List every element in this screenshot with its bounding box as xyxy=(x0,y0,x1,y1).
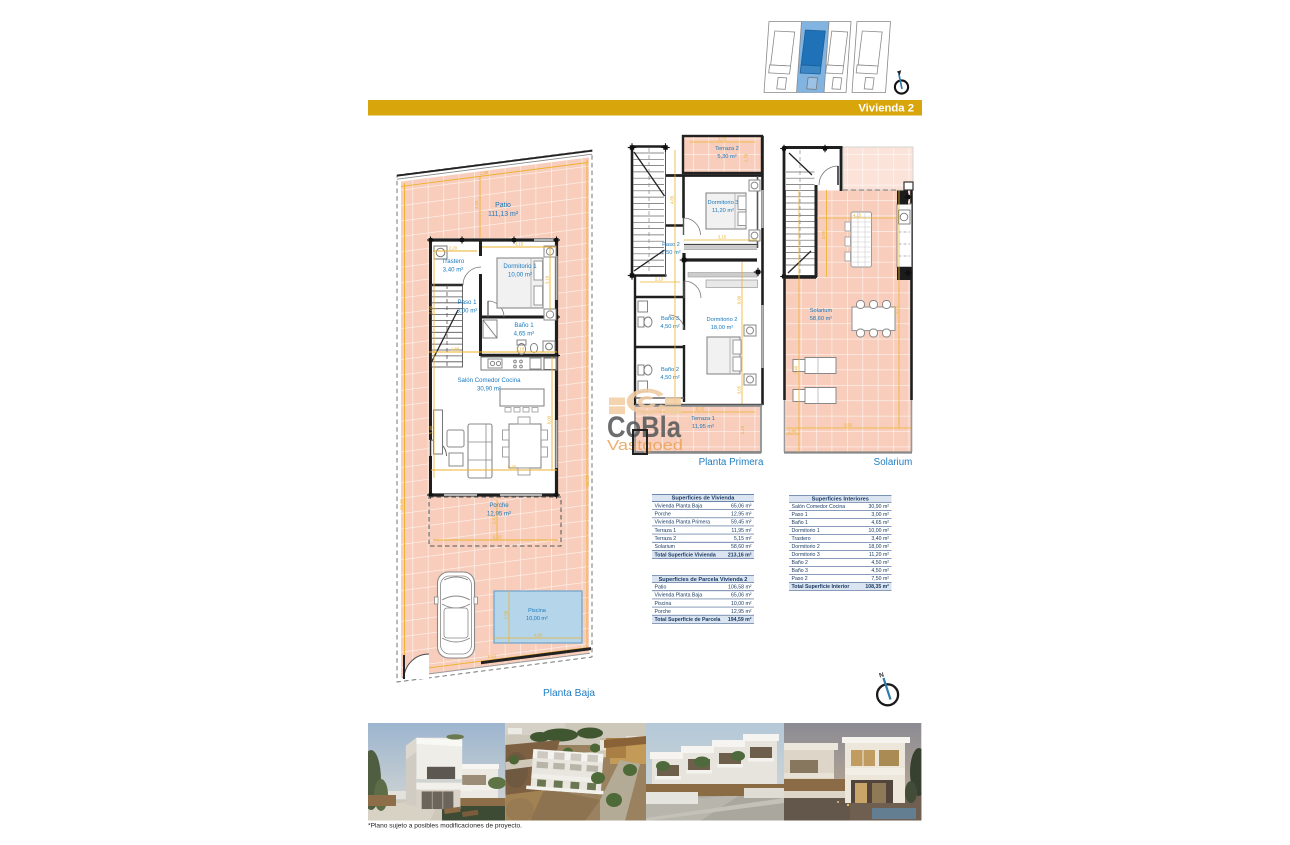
svg-text:Solarium: Solarium xyxy=(874,457,913,468)
svg-text:59,45 m²: 59,45 m² xyxy=(731,520,752,526)
svg-text:Total Superficie de Parcela: Total Superficie de Parcela xyxy=(655,617,721,623)
svg-text:3,18: 3,18 xyxy=(545,275,550,284)
svg-text:Vivienda 2: Vivienda 2 xyxy=(858,103,914,115)
svg-text:Superficies Interiores: Superficies Interiores xyxy=(812,497,869,503)
svg-text:1,15: 1,15 xyxy=(894,305,899,314)
svg-text:4,65 m²: 4,65 m² xyxy=(514,331,535,338)
svg-text:5,05: 5,05 xyxy=(696,407,705,412)
svg-text:5,55: 5,55 xyxy=(844,423,853,428)
svg-text:58,60 m²: 58,60 m² xyxy=(731,544,752,550)
svg-text:Solarium: Solarium xyxy=(655,544,675,550)
svg-text:3,05: 3,05 xyxy=(737,385,742,394)
svg-text:30,90 m²: 30,90 m² xyxy=(477,386,501,393)
svg-text:10,00 m²: 10,00 m² xyxy=(869,528,890,534)
svg-text:4,85: 4,85 xyxy=(670,195,675,204)
svg-text:Piscina: Piscina xyxy=(655,601,672,607)
svg-text:194,59 m²: 194,59 m² xyxy=(728,617,752,623)
svg-text:65,06 m²: 65,06 m² xyxy=(731,503,752,509)
svg-text:4,90: 4,90 xyxy=(534,633,543,638)
svg-text:3,40 m²: 3,40 m² xyxy=(443,267,464,274)
svg-text:Total Superficie Interior: Total Superficie Interior xyxy=(792,584,850,590)
svg-text:10,00 m²: 10,00 m² xyxy=(526,616,548,622)
svg-text:30,90 m²: 30,90 m² xyxy=(869,504,890,510)
svg-text:Dormitorio 3: Dormitorio 3 xyxy=(708,200,739,206)
svg-text:Patio: Patio xyxy=(495,202,511,209)
svg-text:2,15: 2,15 xyxy=(740,425,745,434)
svg-text:Vivienda Planta Baja: Vivienda Planta Baja xyxy=(655,503,703,509)
svg-text:58,60 m²: 58,60 m² xyxy=(810,316,833,322)
svg-text:Total Superficie Vivienda: Total Superficie Vivienda xyxy=(655,552,716,558)
svg-text:Terraza 2: Terraza 2 xyxy=(715,146,739,152)
svg-text:3,33: 3,33 xyxy=(474,200,479,210)
svg-text:11,95 m²: 11,95 m² xyxy=(731,528,751,534)
svg-text:Patio: Patio xyxy=(655,584,667,590)
svg-text:22,15: 22,15 xyxy=(585,474,590,486)
svg-text:Superficies de Parcela Viviend: Superficies de Parcela Vivienda 2 xyxy=(659,577,748,583)
svg-text:11,95 m²: 11,95 m² xyxy=(692,424,714,430)
svg-text:2,05: 2,05 xyxy=(429,305,434,314)
svg-text:Terraza 2: Terraza 2 xyxy=(655,536,677,542)
svg-text:5,15 m²: 5,15 m² xyxy=(734,536,752,542)
svg-text:Salón Comedor Cocina: Salón Comedor Cocina xyxy=(457,377,521,384)
svg-text:12,95 m²: 12,95 m² xyxy=(731,609,752,615)
svg-text:6,00: 6,00 xyxy=(547,415,552,424)
svg-text:Superficies de Vivienda: Superficies de Vivienda xyxy=(672,496,736,502)
svg-text:3,18: 3,18 xyxy=(516,347,525,352)
svg-text:5,25: 5,25 xyxy=(508,465,517,470)
svg-text:7,50 m²: 7,50 m² xyxy=(661,250,680,256)
svg-text:Trastero: Trastero xyxy=(792,536,811,542)
svg-text:*Plano sujeto a posibles modif: *Plano sujeto a posibles modificaciones … xyxy=(368,823,522,830)
svg-text:Baño 1: Baño 1 xyxy=(792,520,809,526)
svg-text:106,58 m²: 106,58 m² xyxy=(728,584,752,590)
svg-text:Vivienda Planta Baja: Vivienda Planta Baja xyxy=(655,593,703,599)
svg-text:Paso 2: Paso 2 xyxy=(662,242,680,248)
svg-text:10,00 m²: 10,00 m² xyxy=(508,272,532,279)
svg-text:18,00 m²: 18,00 m² xyxy=(711,325,734,331)
svg-text:11,20 m²: 11,20 m² xyxy=(869,552,889,558)
svg-text:7,50 m²: 7,50 m² xyxy=(871,576,889,582)
svg-text:Planta Baja: Planta Baja xyxy=(543,688,595,699)
svg-text:Dormitorio 3: Dormitorio 3 xyxy=(792,552,820,558)
svg-text:Vivienda Planta Primera: Vivienda Planta Primera xyxy=(655,520,711,526)
svg-text:2,13: 2,13 xyxy=(655,277,664,282)
svg-text:Baño 3: Baño 3 xyxy=(792,568,809,574)
svg-text:3,15: 3,15 xyxy=(718,235,727,240)
svg-text:1,88: 1,88 xyxy=(451,347,460,352)
svg-text:0,60: 0,60 xyxy=(737,295,742,304)
svg-text:10,00 m²: 10,00 m² xyxy=(731,601,752,607)
svg-text:Planta Primera: Planta Primera xyxy=(699,457,764,468)
svg-text:108,35 m²: 108,35 m² xyxy=(865,584,889,590)
svg-text:2,50: 2,50 xyxy=(504,610,509,619)
svg-text:Paso 1: Paso 1 xyxy=(458,299,478,306)
svg-text:Salón Comedor Cocina: Salón Comedor Cocina xyxy=(792,504,846,510)
svg-text:Porche: Porche xyxy=(655,512,672,518)
svg-text:4,50 m²: 4,50 m² xyxy=(871,568,889,574)
svg-text:18,00 m²: 18,00 m² xyxy=(869,544,890,550)
svg-text:213,16 m²: 213,16 m² xyxy=(728,552,752,558)
svg-text:Solarium: Solarium xyxy=(810,308,833,314)
svg-text:Terraza 1: Terraza 1 xyxy=(691,416,715,422)
svg-text:Trastero: Trastero xyxy=(442,258,465,265)
svg-text:5,40: 5,40 xyxy=(429,425,434,434)
svg-text:3,40 m²: 3,40 m² xyxy=(871,536,889,542)
svg-text:Paso 2: Paso 2 xyxy=(792,576,808,582)
svg-text:3,00 m²: 3,00 m² xyxy=(871,512,889,518)
svg-text:3,05: 3,05 xyxy=(718,137,727,142)
svg-text:Porche: Porche xyxy=(489,502,509,509)
svg-text:111,13 m²: 111,13 m² xyxy=(488,211,519,218)
svg-text:11,20 m²: 11,20 m² xyxy=(712,208,734,214)
svg-text:3,95: 3,95 xyxy=(821,230,826,239)
svg-text:65,06 m²: 65,06 m² xyxy=(731,593,752,599)
svg-text:Piscina: Piscina xyxy=(528,608,547,614)
svg-text:4,50 m²: 4,50 m² xyxy=(660,375,679,381)
svg-text:Vastgoed: Vastgoed xyxy=(607,437,683,454)
svg-text:4,50 m²: 4,50 m² xyxy=(871,560,889,566)
svg-text:2,20: 2,20 xyxy=(449,246,458,251)
svg-text:Baño 2: Baño 2 xyxy=(792,560,809,566)
svg-text:4,65 m²: 4,65 m² xyxy=(871,520,889,526)
svg-text:5,30 m²: 5,30 m² xyxy=(717,154,736,160)
svg-text:Baño 2: Baño 2 xyxy=(661,367,679,373)
svg-text:4,50 m²: 4,50 m² xyxy=(660,324,679,330)
svg-text:1,40: 1,40 xyxy=(788,429,797,434)
svg-text:Dormitorio 1: Dormitorio 1 xyxy=(792,528,820,534)
svg-text:4,15: 4,15 xyxy=(853,213,862,218)
svg-text:Porche: Porche xyxy=(655,609,672,615)
svg-text:3,15: 3,15 xyxy=(515,242,524,247)
svg-text:22,15: 22,15 xyxy=(399,498,404,510)
svg-text:Dormitorio 1: Dormitorio 1 xyxy=(503,263,537,270)
svg-text:Baño 1: Baño 1 xyxy=(514,322,534,329)
svg-text:Dormitorio 2: Dormitorio 2 xyxy=(792,544,820,550)
svg-text:3,00 m²: 3,00 m² xyxy=(457,308,478,315)
svg-text:1,70: 1,70 xyxy=(744,153,749,162)
svg-text:7,40: 7,40 xyxy=(794,365,799,374)
svg-text:Dormitorio 2: Dormitorio 2 xyxy=(707,317,738,323)
svg-text:Terraza 1: Terraza 1 xyxy=(655,528,677,534)
svg-text:12,95 m²: 12,95 m² xyxy=(731,512,752,518)
svg-text:Paso 1: Paso 1 xyxy=(792,512,808,518)
svg-text:2,47: 2,47 xyxy=(492,515,497,524)
